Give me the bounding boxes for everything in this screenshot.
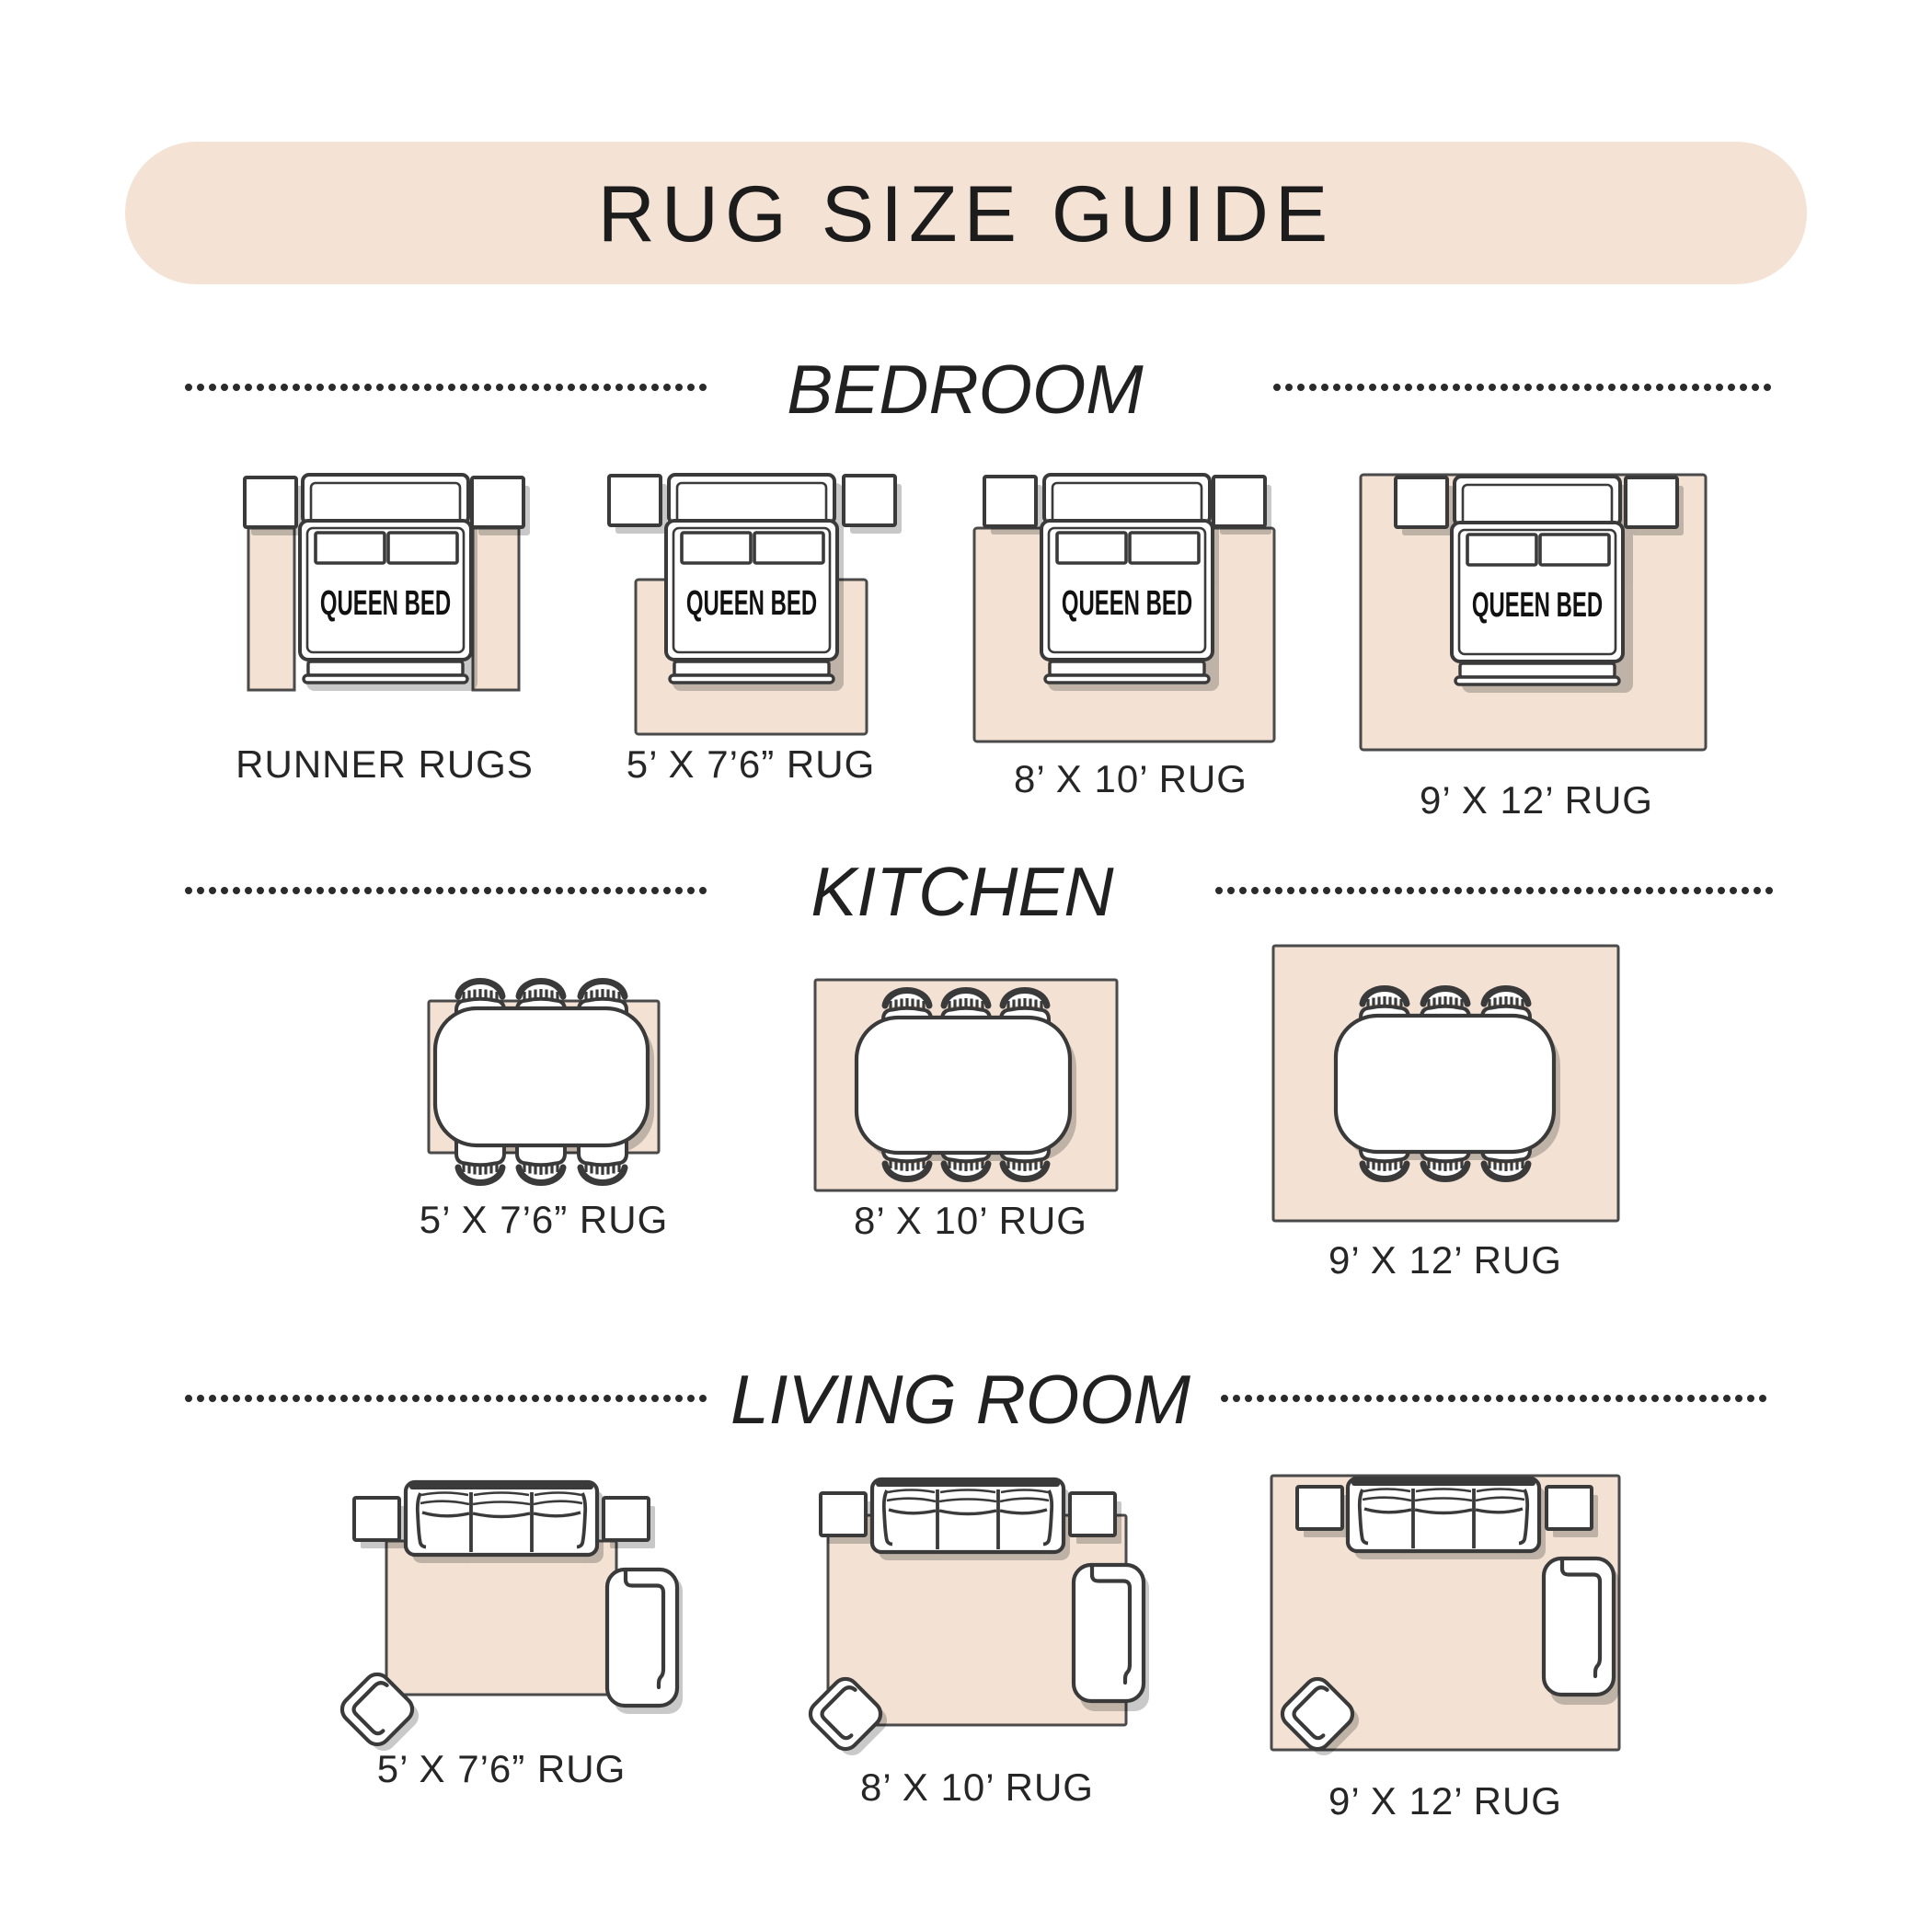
svg-text:LIVING ROOM: LIVING ROOM	[730, 1361, 1191, 1438]
svg-text:5’ X 7’6” RUG: 5’ X 7’6” RUG	[627, 742, 876, 786]
svg-text:5’ X 7’6” RUG: 5’ X 7’6” RUG	[377, 1747, 627, 1790]
svg-text:KITCHEN: KITCHEN	[811, 853, 1114, 930]
svg-text:9’ X 12’ RUG: 9’ X 12’ RUG	[1420, 778, 1653, 822]
svg-text:8’ X 10’ RUG: 8’ X 10’ RUG	[854, 1199, 1087, 1242]
svg-text:BEDROOM: BEDROOM	[787, 351, 1144, 428]
svg-text:RUG SIZE GUIDE: RUG SIZE GUIDE	[598, 170, 1334, 259]
svg-text:9’ X 12’ RUG: 9’ X 12’ RUG	[1328, 1238, 1562, 1282]
svg-text:8’ X 10’ RUG: 8’ X 10’ RUG	[860, 1765, 1094, 1809]
svg-text:8’ X 10’ RUG: 8’ X 10’ RUG	[1014, 757, 1248, 800]
svg-text:9’ X 12’ RUG: 9’ X 12’ RUG	[1328, 1779, 1562, 1823]
svg-text:5’ X 7’6” RUG: 5’ X 7’6” RUG	[420, 1198, 669, 1241]
svg-text:RUNNER RUGS: RUNNER RUGS	[236, 742, 534, 786]
